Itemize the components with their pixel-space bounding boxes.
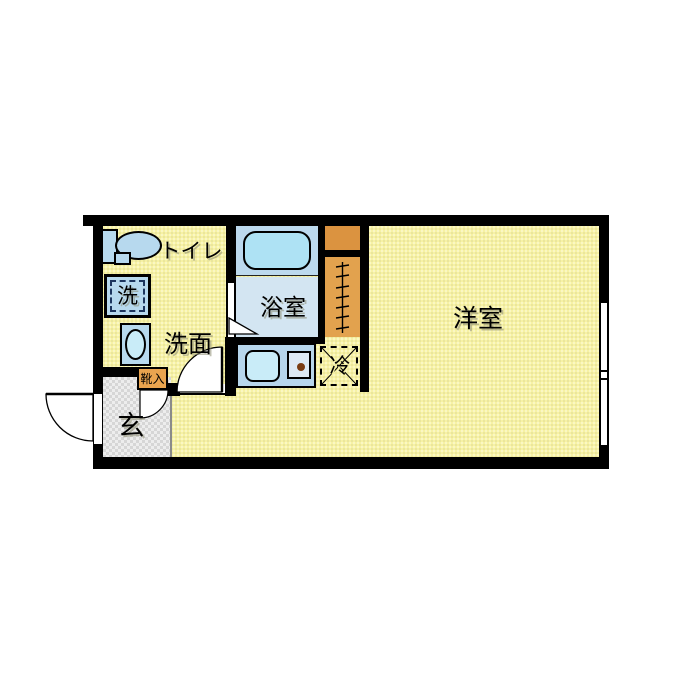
entrance-door-swing bbox=[46, 394, 93, 441]
floorplan: 洗 靴入 bbox=[0, 0, 700, 700]
bathroom-door-icon bbox=[229, 318, 257, 334]
overlay-graphics bbox=[0, 0, 700, 700]
bathroom-label: 浴室 bbox=[248, 296, 318, 320]
entrance-label: 玄 bbox=[116, 411, 146, 441]
refrigerator-label: 冷 bbox=[328, 354, 352, 378]
western-room-label: 洋室 bbox=[448, 305, 508, 332]
toilet-label: トイレ bbox=[160, 240, 222, 263]
closet-hatch-icon bbox=[336, 262, 349, 333]
washroom-label: 洗面 bbox=[152, 331, 224, 357]
